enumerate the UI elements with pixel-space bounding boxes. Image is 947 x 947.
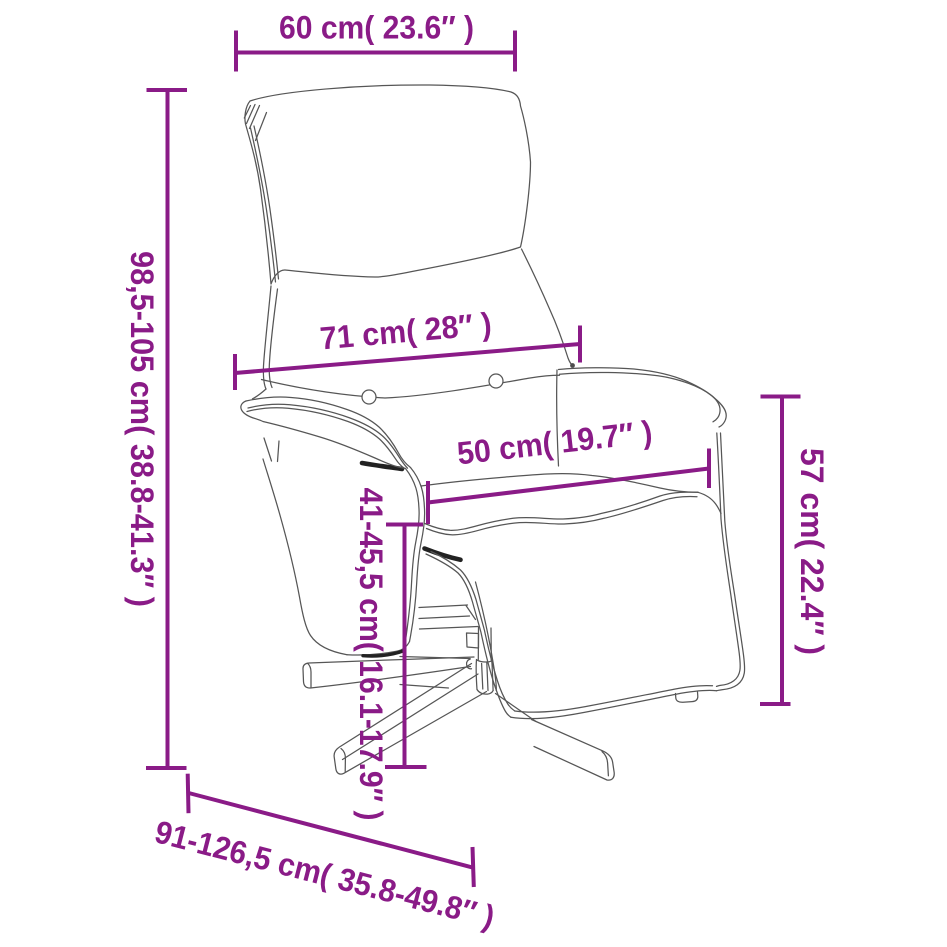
svg-text:41-45,5 cm( 16.1-17.9″ ): 41-45,5 cm( 16.1-17.9″ ) xyxy=(353,488,389,821)
svg-text:60 cm( 23.6″ ): 60 cm( 23.6″ ) xyxy=(279,10,474,46)
svg-text:57 cm( 22.4″ ): 57 cm( 22.4″ ) xyxy=(794,448,830,655)
svg-text:98,5-105 cm( 38.8-41.3″ ): 98,5-105 cm( 38.8-41.3″ ) xyxy=(124,251,160,607)
svg-text:71 cm( 28″ ): 71 cm( 28″ ) xyxy=(318,306,492,357)
svg-text:91-126,5 cm( 35.8-49.8″ ): 91-126,5 cm( 35.8-49.8″ ) xyxy=(151,813,498,935)
svg-text:50 cm( 19.7″ ): 50 cm( 19.7″ ) xyxy=(455,413,654,471)
